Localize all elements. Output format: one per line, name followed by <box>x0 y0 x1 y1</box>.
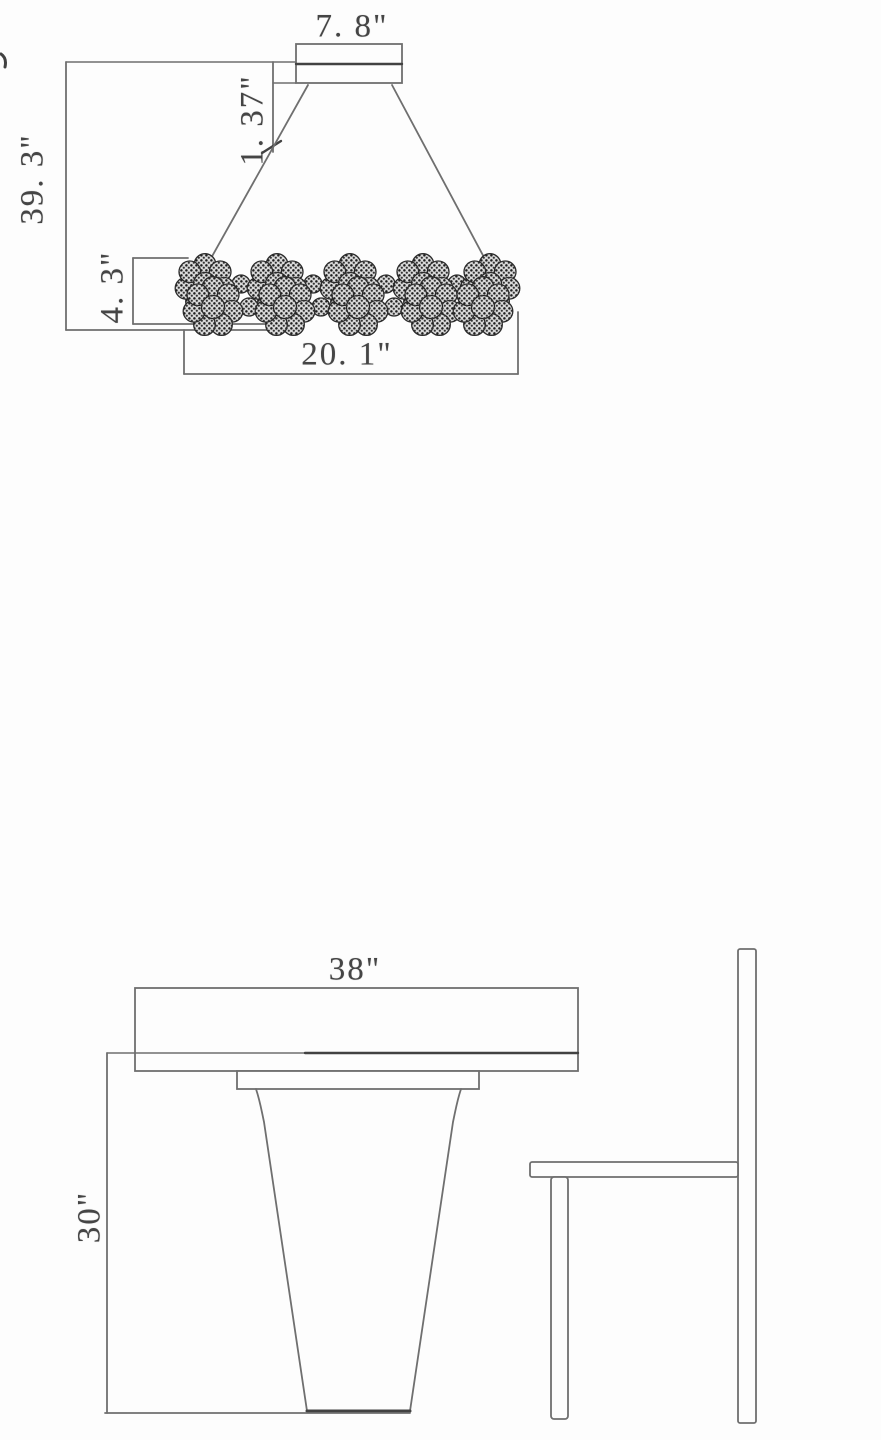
table-and-chair-drawing <box>105 949 756 1423</box>
table-height-label: 30" <box>72 1191 109 1243</box>
chair-front-leg <box>551 1177 568 1419</box>
line-art-canvas <box>0 0 881 1440</box>
chair-seat <box>530 1162 738 1177</box>
overall-height-label: 39. 3" <box>15 133 52 224</box>
canopy <box>296 44 402 83</box>
crystal-cluster <box>328 277 388 336</box>
pedestal-side-left <box>256 1089 307 1411</box>
chair-back-post <box>738 949 756 1423</box>
table-width-label: 38" <box>329 952 381 989</box>
fixture-width-label: 20. 1" <box>301 337 392 374</box>
suspension-cable-right <box>392 85 486 261</box>
crystal-cluster <box>453 277 513 336</box>
fixture-height-label: 4. 3" <box>95 251 132 324</box>
pedestal-side-right <box>410 1089 461 1411</box>
tabletop <box>135 988 578 1071</box>
crystal-cluster <box>255 277 315 336</box>
chandelier-drawing <box>66 44 520 374</box>
crystal-cluster <box>183 277 243 336</box>
dimension-drawing-page: 7. 8" 1. 37" 39. 3" 4. 3" 20. 1" 38" 30" <box>0 0 881 1440</box>
pedestal-collar <box>237 1071 479 1089</box>
canopy-height-label: 1. 37" <box>235 74 272 165</box>
tabletop-slab <box>135 988 578 1071</box>
crystal-cluster <box>401 277 461 336</box>
pedestal-base <box>256 1089 461 1411</box>
table-height-dimension-lines <box>107 1053 135 1413</box>
crystal-band <box>175 254 520 336</box>
scan-artifact-mark <box>1 54 6 67</box>
canopy-width-label: 7. 8" <box>316 9 389 46</box>
